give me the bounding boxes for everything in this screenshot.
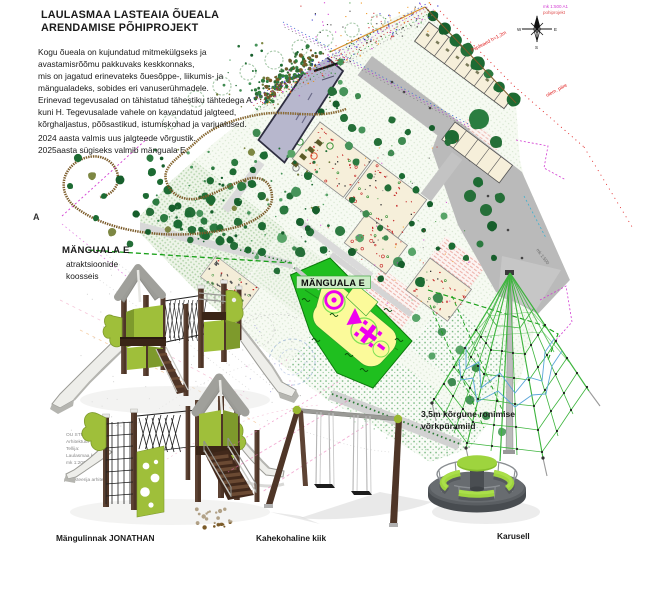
svg-text:A: A	[33, 212, 40, 222]
svg-text:pohiprojekt: pohiprojekt	[543, 10, 566, 15]
svg-text:E: E	[554, 27, 557, 32]
svg-text:mk 1:500 A1: mk 1:500 A1	[543, 4, 569, 9]
svg-text:S: S	[535, 45, 538, 50]
svg-text:W: W	[517, 27, 522, 32]
svg-text:olem. piire: olem. piire	[545, 83, 568, 99]
svg-text:Piirdeaed h=1,2m: Piirdeaed h=1,2m	[470, 30, 508, 54]
svg-text:Tellija:: Tellija:	[66, 446, 79, 452]
svg-text:MÄNGUALA E: MÄNGUALA E	[301, 278, 365, 288]
